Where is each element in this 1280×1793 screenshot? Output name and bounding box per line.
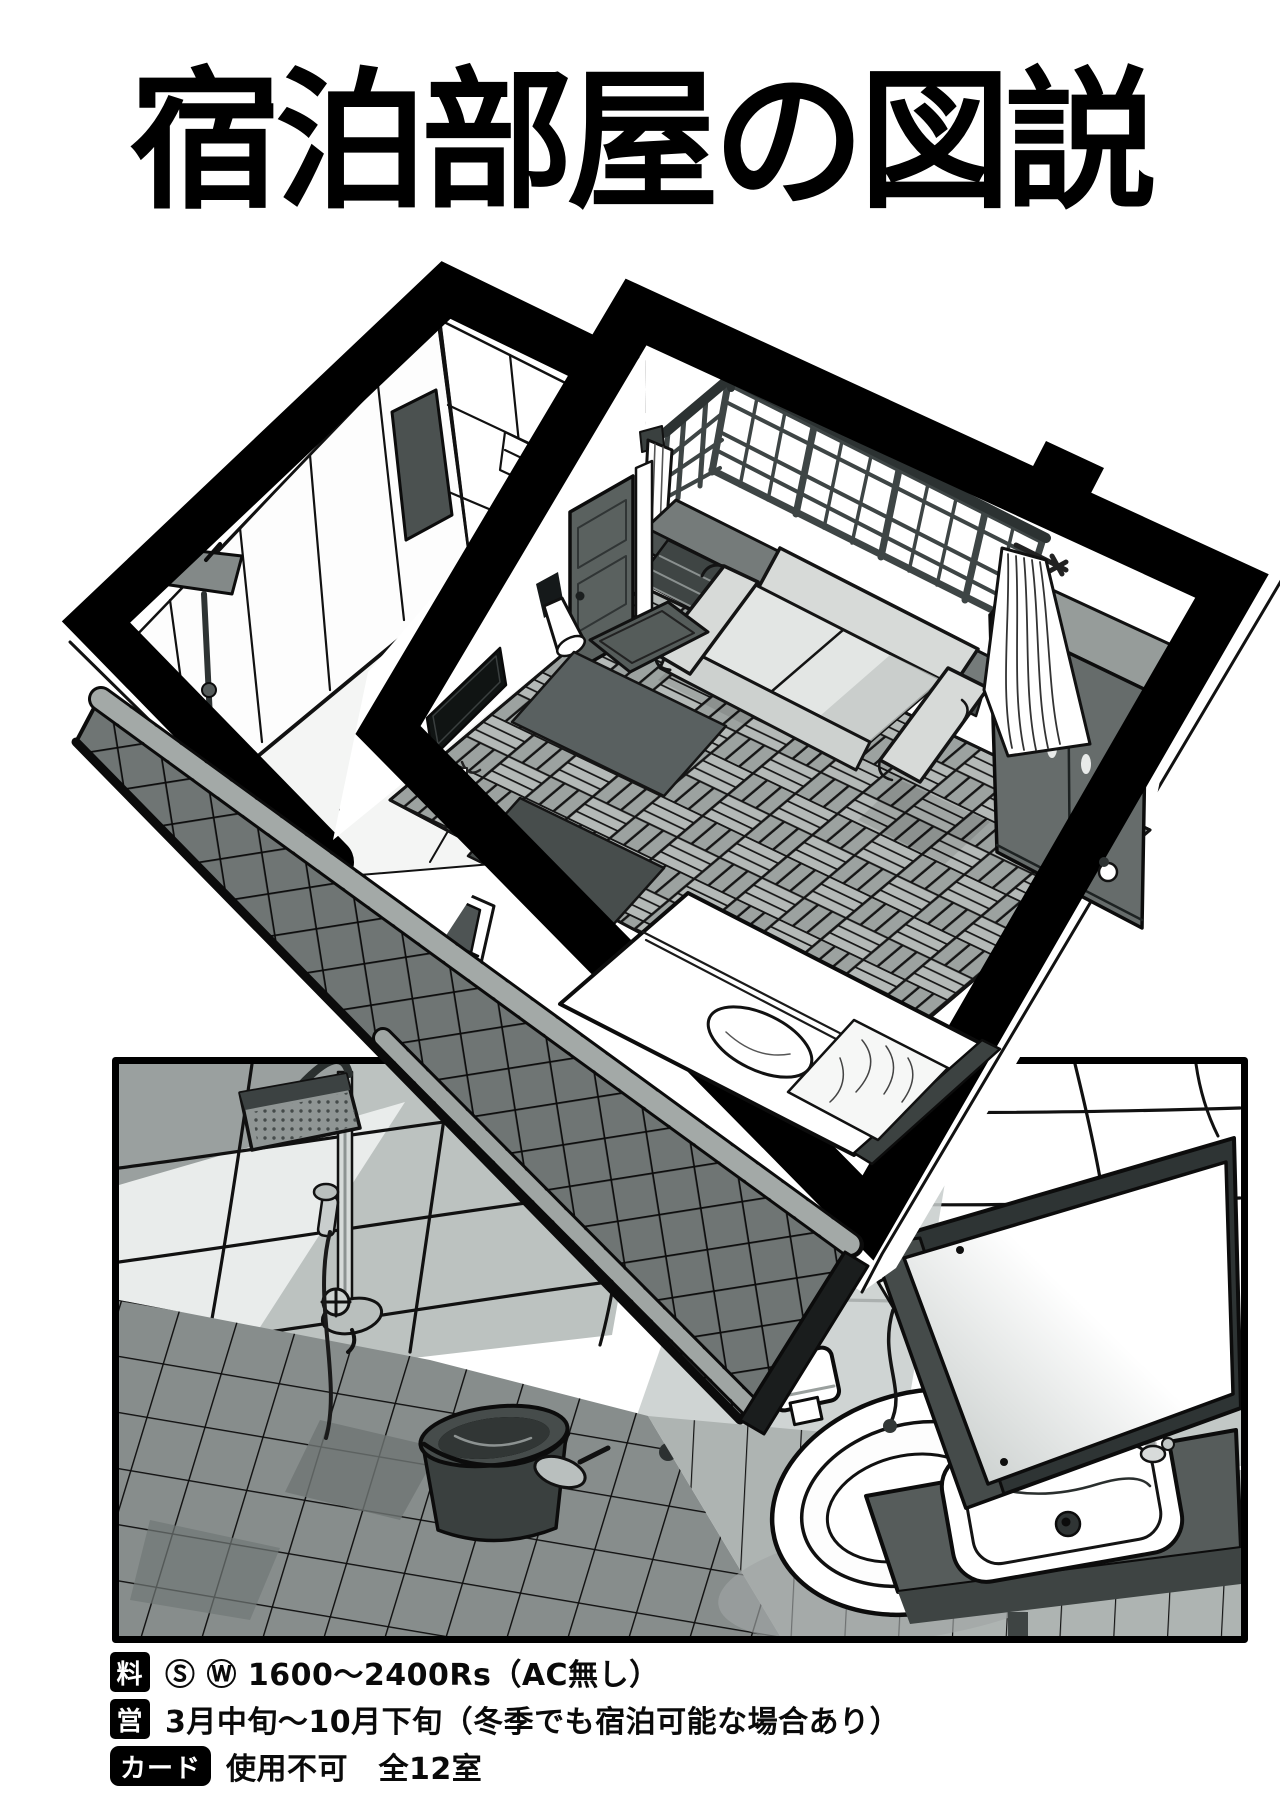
manga-page: 宿泊部屋の図説 [0,0,1280,1793]
info-row-card: カード 使用不可 全12室 [110,1744,482,1788]
room-illustration [0,0,1280,1793]
season-text: 3月中旬〜10月下旬（冬季でも宿泊可能な場合あり） [165,1697,900,1741]
info-row-season: 営 3月中旬〜10月下旬（冬季でも宿泊可能な場合あり） [110,1697,900,1741]
card-text: 使用不可 全12室 [226,1744,482,1788]
season-label-badge: 営 [110,1699,150,1739]
card-label-badge: カード [110,1746,211,1786]
rate-text: Ⓢ Ⓦ 1600〜2400Rs（AC無し） [165,1650,660,1694]
rate-label-badge: 料 [110,1652,150,1692]
info-row-rate: 料 Ⓢ Ⓦ 1600〜2400Rs（AC無し） [110,1650,660,1694]
